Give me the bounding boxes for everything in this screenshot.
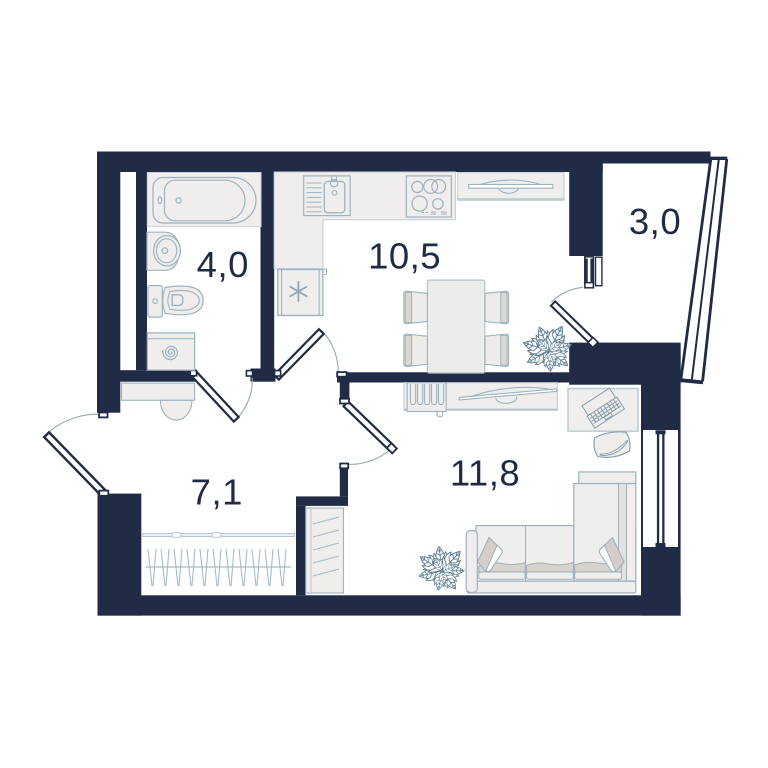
svg-text:3,0: 3,0 <box>629 201 681 242</box>
svg-text:4,0: 4,0 <box>197 244 249 285</box>
svg-text:11,8: 11,8 <box>450 453 520 494</box>
svg-text:7,1: 7,1 <box>191 472 243 513</box>
svg-text:10,5: 10,5 <box>368 235 441 276</box>
